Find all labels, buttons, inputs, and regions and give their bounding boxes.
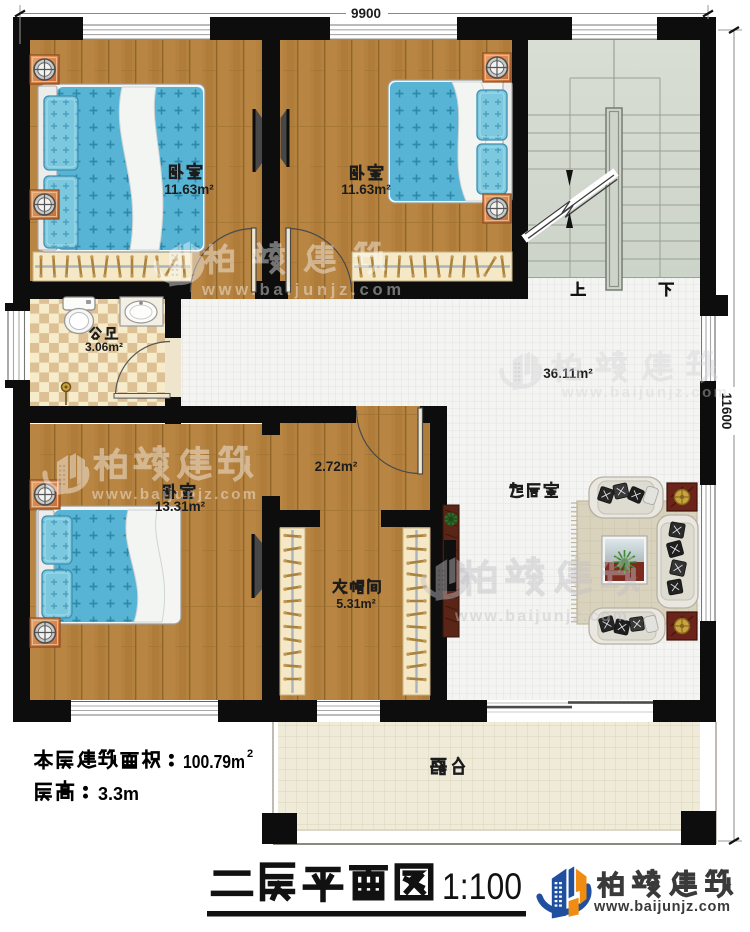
svg-text:1:100: 1:100 xyxy=(442,866,522,907)
svg-text:9900: 9900 xyxy=(351,6,381,21)
svg-text:11.63m²: 11.63m² xyxy=(164,182,214,197)
svg-text:3.06m²: 3.06m² xyxy=(85,340,123,354)
svg-text:2: 2 xyxy=(247,748,253,760)
svg-text:11.63m²: 11.63m² xyxy=(341,182,391,197)
svg-text:2.72m²: 2.72m² xyxy=(315,459,358,474)
svg-text:5.31m²: 5.31m² xyxy=(336,597,376,611)
svg-text:www.baijunjz.com: www.baijunjz.com xyxy=(593,899,730,915)
svg-text:100.79m: 100.79m xyxy=(183,752,245,772)
svg-text:3.3m: 3.3m xyxy=(98,784,139,804)
